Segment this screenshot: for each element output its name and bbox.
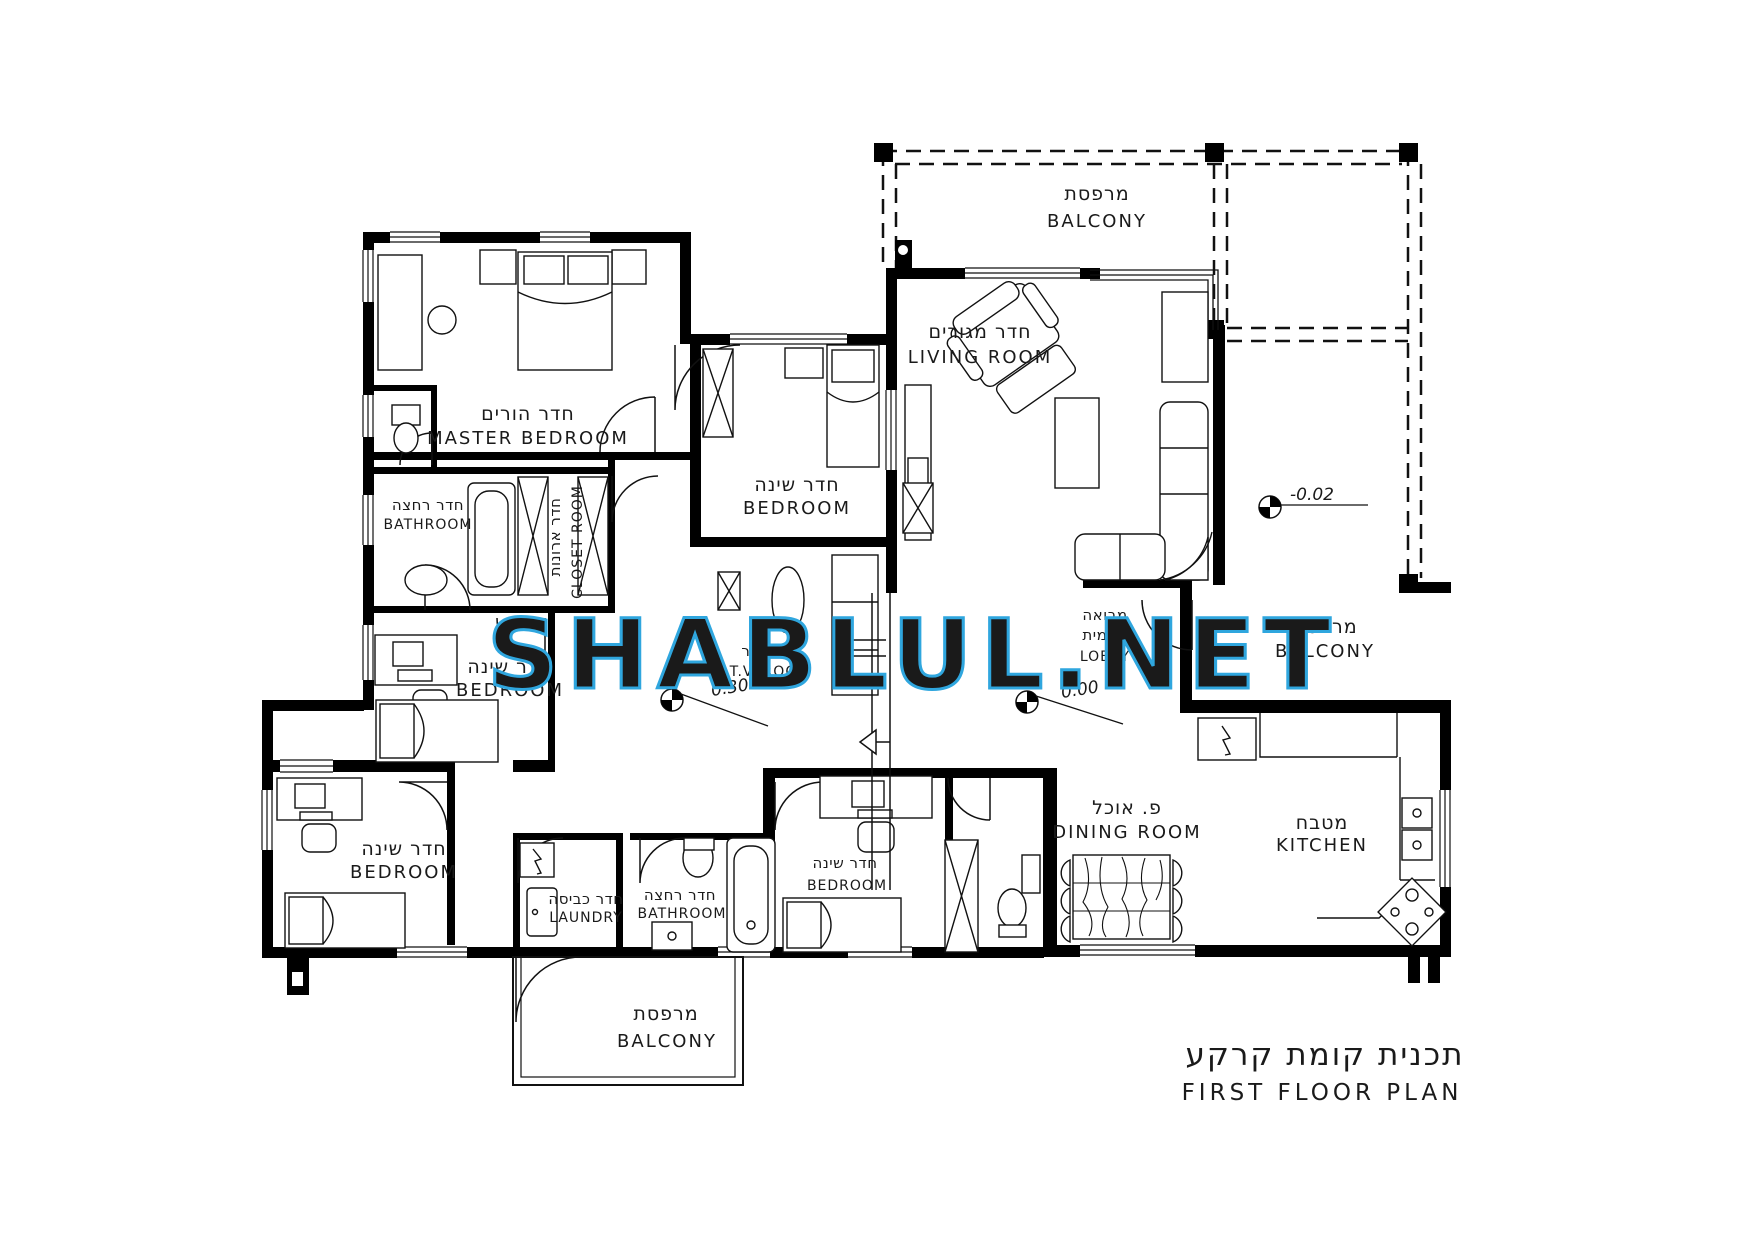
floor-plan-page: 0.30 0.00 -0.02 מרפסת BALCONY חדר מגורים…	[0, 0, 1754, 1240]
watermark-text: SHABLUL.NET	[487, 599, 1339, 711]
label-master-he: חדר הורים	[481, 403, 575, 425]
label-kitchen-he: מטבח	[1296, 812, 1349, 834]
bottom-balcony-outline	[513, 957, 743, 1085]
floor-plan-drawing: 0.30 0.00 -0.02 מרפסת BALCONY חדר מגורים…	[0, 0, 1754, 1240]
title-hebrew: תכנית קומת קרקע	[1186, 1037, 1465, 1073]
label-bedroom-bl-en: BEDROOM	[350, 862, 458, 883]
label-balcony-bottom-en: BALCONY	[617, 1031, 717, 1052]
label-bath-top-he: חדר רחצה	[392, 496, 464, 514]
drawing-title: תכנית קומת קרקע FIRST FLOOR PLAN	[1182, 1037, 1465, 1106]
label-laundry-en: LAUNDRY	[549, 910, 623, 926]
label-bedroom-br-en: BEDROOM	[807, 878, 887, 894]
label-dining-he: פ. אוכל	[1092, 797, 1162, 819]
label-balcony-bottom-he: מרפסת	[633, 1003, 698, 1025]
label-balcony-top-en: BALCONY	[1047, 211, 1147, 232]
label-closet-he: חדר ארונות	[546, 498, 564, 577]
label-master-en: MASTER BEDROOM	[427, 428, 629, 449]
label-living-en: LIVING ROOM	[908, 347, 1052, 368]
label-dining-en: DINING ROOM	[1052, 822, 1201, 843]
label-bedroom-top-en: BEDROOM	[743, 498, 851, 519]
label-bedroom-top-he: חדר שינה	[754, 474, 839, 496]
entry-arrow-icon	[860, 730, 876, 754]
label-kitchen-en: KITCHEN	[1276, 835, 1368, 856]
label-closet-en: CLOSET ROOM	[570, 485, 586, 599]
label-balcony-top-he: מרפסת	[1064, 183, 1129, 205]
label-bath-top-en: BATHROOM	[383, 517, 472, 533]
label-laundry-he: חדר כביסה	[548, 890, 623, 908]
title-english: FIRST FLOOR PLAN	[1182, 1080, 1463, 1106]
label-bath-bottom-he: חדר רחצה	[644, 886, 716, 904]
label-bath-bottom-en: BATHROOM	[637, 906, 726, 922]
label-bedroom-br-he: חדר שינה	[812, 854, 877, 872]
label-bedroom-bl-he: חדר שינה	[361, 838, 446, 860]
level-value-living: -0.02	[1290, 485, 1334, 505]
label-living-he: חדר מגורים	[928, 321, 1031, 343]
